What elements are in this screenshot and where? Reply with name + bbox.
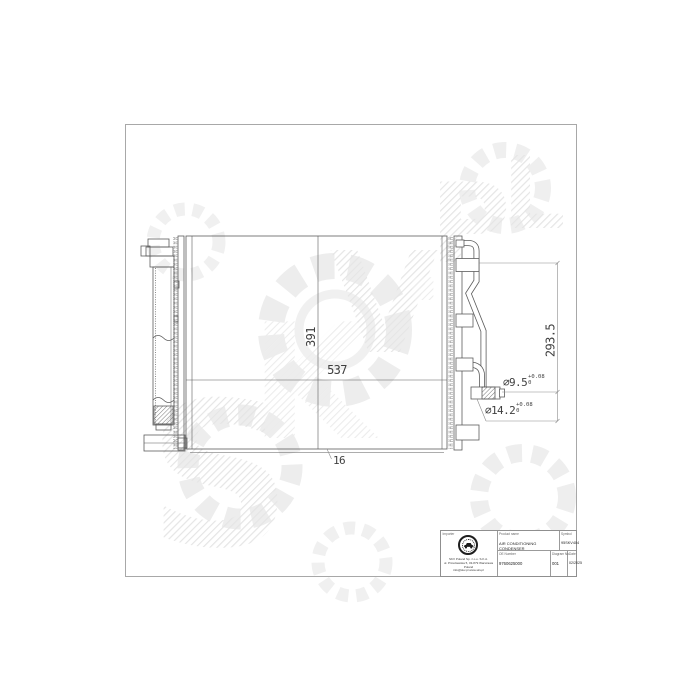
diagram-no-value: 001 xyxy=(552,561,559,566)
port-large-tolerance: +0.08 0 xyxy=(516,403,533,414)
tol-lower: 0 xyxy=(528,381,545,387)
dim-core-height: 391 xyxy=(304,323,318,351)
port xyxy=(456,259,479,272)
importer-address: SKV Poland Sp. z o.o. S.K.A. ul. Przecla… xyxy=(442,558,495,573)
importer-label: Importer xyxy=(443,532,455,536)
dimension-lines xyxy=(327,261,560,459)
drier-hatched-section xyxy=(154,406,173,424)
dim-port-small: ⌀9.5 +0.08 0 xyxy=(503,376,545,389)
port-small-tolerance: +0.08 0 xyxy=(528,375,545,386)
port-stub xyxy=(456,240,464,247)
port xyxy=(456,425,479,440)
oe-number-label: OE Number xyxy=(499,552,516,556)
dim-core-width: 537 xyxy=(322,363,352,377)
address-line: info@skv.pl www.skv.pl xyxy=(442,569,495,573)
condenser-drawing xyxy=(0,0,700,700)
car-icon xyxy=(463,541,474,549)
port-large-diameter: ⌀14.2 xyxy=(485,404,515,417)
title-block: Importer SKV Poland Sp. z o.o. S.K.A. ul… xyxy=(440,530,577,577)
dim-core-depth: 16 xyxy=(331,454,347,467)
connector-fitting-hatch xyxy=(482,387,495,399)
product-name-label: Product name xyxy=(499,532,519,536)
receiver-drier xyxy=(141,239,187,451)
connector-fitting-tip xyxy=(500,389,505,397)
dim-port-large: ⌀14.2 +0.08 0 xyxy=(485,404,533,417)
left-fin-ticks xyxy=(173,237,178,449)
oe-number-value: 9760625000 xyxy=(499,561,522,566)
drier-top-bracket xyxy=(141,246,150,256)
date-label: Date xyxy=(569,552,576,556)
tol-lower: 0 xyxy=(516,409,533,415)
stamp-ring xyxy=(462,539,475,552)
port xyxy=(456,314,473,327)
symbol-value: 95SKV404 xyxy=(561,541,579,546)
product-name-value: AIR CONDITIONING CONDENSER xyxy=(499,541,559,551)
port-small-diameter: ⌀9.5 xyxy=(503,376,527,389)
drier-top-cap xyxy=(148,239,169,247)
right-fin-ticks xyxy=(449,237,454,449)
left-side-plate xyxy=(178,236,184,450)
port xyxy=(456,358,473,371)
drier-top-cap xyxy=(150,256,174,267)
dim-connector-span: 293.5 xyxy=(544,321,557,361)
date-value: 02/2025 xyxy=(569,561,582,566)
importer-stamp-icon xyxy=(458,535,478,555)
diagram-no-label: Diagram No. xyxy=(552,552,570,556)
drawing-sheet: S K V . P L xyxy=(0,0,700,700)
symbol-label: Symbol xyxy=(561,532,572,536)
